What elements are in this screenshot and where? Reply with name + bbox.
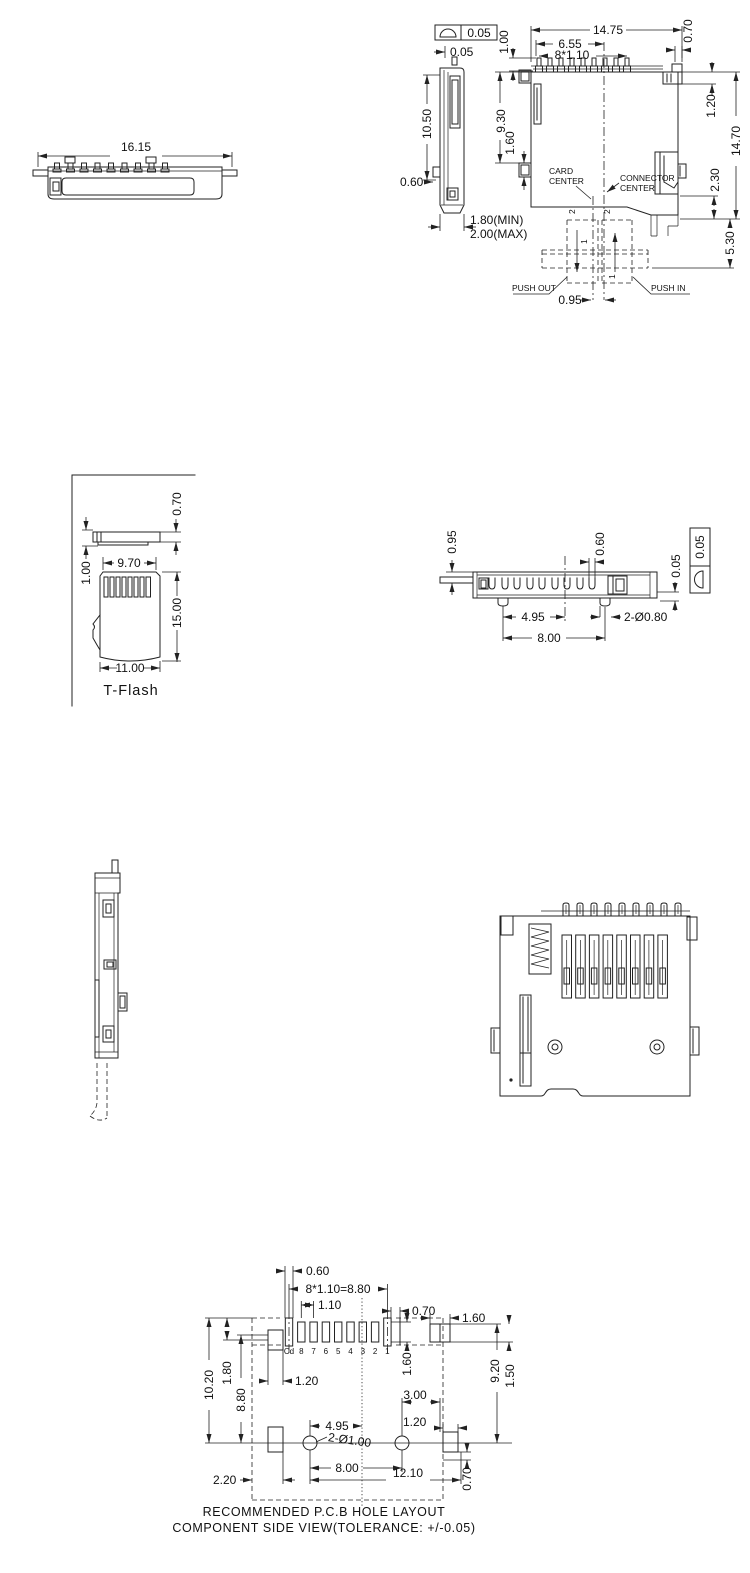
dim-pad-width: 0.60 xyxy=(306,1264,330,1278)
dim-profile-height: 10.50 xyxy=(420,109,434,139)
dim-thickness-min: 1.80(MIN) xyxy=(470,213,523,227)
dim-left-pad-width: 1.20 xyxy=(295,1374,319,1388)
pad-label-cd: Cd xyxy=(284,1347,294,1356)
dim-span: 8.80 xyxy=(234,1388,248,1412)
flatness-callout-vertical: 0.05 xyxy=(690,528,710,593)
tflash-card-view: 0.70 1.00 9.70 15.00 11.00 T-Flash xyxy=(72,475,195,706)
card-pos1-right: 1 xyxy=(607,274,617,279)
dim-right-pad2-width: 1.20 xyxy=(403,1415,427,1429)
flatness-symbol-icon xyxy=(695,571,704,588)
dim-pitch: 1.10 xyxy=(318,1298,342,1312)
technical-drawing-page: 16.15 0.05 0.05 10.50 xyxy=(0,0,750,1573)
flatness-callout: 0.05 xyxy=(435,25,497,40)
dim-bottom-margin: 0.70 xyxy=(460,1467,474,1491)
pad-label-6: 6 xyxy=(324,1347,329,1356)
pcb-pad-labels: Cd 8 7 6 5 4 3 2 1 xyxy=(284,1347,390,1356)
pad-label-1: 1 xyxy=(385,1347,390,1356)
dim-overall-depth: 14.70 xyxy=(729,126,743,156)
dim-card-thickness: 0.70 xyxy=(170,492,184,516)
card-center-label-2: CENTER xyxy=(549,176,584,186)
dim-center-offset: 0.95 xyxy=(558,293,582,307)
pad-label-2: 2 xyxy=(373,1347,378,1356)
dim-card-length: 15.00 xyxy=(170,598,184,628)
dim-peg-diameter: 2-Ø0.80 xyxy=(624,610,668,624)
dim-profile-tab: 0.60 xyxy=(400,175,424,189)
dim-pad-height: 1.60 xyxy=(400,1352,414,1376)
card-center-label-1: CARD xyxy=(549,166,573,176)
dim-overall-width: 14.75 xyxy=(593,23,623,37)
dim-thickness-max: 2.00(MAX) xyxy=(470,227,527,241)
dim-depth-to-tab: 9.30 xyxy=(494,109,508,133)
top-view: 2 2 1 1 14.75 6.55 8*1.10 1.00 9.30 1. xyxy=(494,19,743,307)
pad-label-8: 8 xyxy=(299,1347,304,1356)
card-pos1-left: 1 xyxy=(579,239,589,244)
terminal-view-pins xyxy=(563,903,681,916)
dim-right-pad-width: 1.60 xyxy=(462,1311,486,1325)
pcb-caption-line1: RECOMMENDED P.C.B HOLE LAYOUT xyxy=(203,1505,446,1519)
dim-card-width: 11.00 xyxy=(115,661,144,675)
pcb-caption-line2: COMPONENT SIDE VIEW(TOLERANCE: +/-0.05) xyxy=(172,1521,475,1535)
dim-front-overall-width: 16.15 xyxy=(121,140,151,154)
flatness-tolerance-value: 0.05 xyxy=(467,26,491,40)
terminal-face-view xyxy=(491,903,699,1096)
dim-pitch-total: 8*1.10=8.80 xyxy=(305,1282,370,1296)
dim-overall: 12.10 xyxy=(393,1466,423,1480)
pad-label-3: 3 xyxy=(361,1347,366,1356)
dim-latch-depth: 2.30 xyxy=(708,168,722,192)
pad-label-7: 7 xyxy=(311,1347,316,1356)
dim-pin-pitch: 8*1.10 xyxy=(555,48,590,62)
front-view-pins xyxy=(53,157,169,172)
dim-hole-diameter: 2-Ø1.00 xyxy=(327,1430,372,1450)
push-out-label: PUSH OUT xyxy=(512,283,556,293)
dim-lead-width: 0.60 xyxy=(593,532,607,556)
dim-card-overhang: 5.30 xyxy=(723,231,737,255)
connector-center-label-2: CENTER xyxy=(620,183,655,193)
pad-label-5: 5 xyxy=(336,1347,341,1356)
dim-standoff: 0.95 xyxy=(445,530,459,554)
dim-hole-to-pad: 3.00 xyxy=(403,1388,427,1402)
dim-right-pad-height: 1.50 xyxy=(503,1364,517,1388)
card-pos2-left: 2 xyxy=(567,209,577,214)
dim-card-top-width: 9.70 xyxy=(117,556,141,570)
dim-pin-width: 0.70 xyxy=(681,19,695,43)
dim-coplanarity: 0.05 xyxy=(669,554,683,578)
dim-pad1-offset: 0.70 xyxy=(412,1304,436,1318)
bottom-view: 0.95 0.60 0.05 0.05 4.95 8.00 2-Ø0.80 xyxy=(440,528,710,645)
tflash-contacts xyxy=(104,577,151,597)
tflash-label: T-Flash xyxy=(103,683,158,699)
dim-peg-offset: 4.95 xyxy=(521,610,545,624)
flatness-symbol-icon xyxy=(440,29,456,37)
pcb-hole-layout: Cd 8 7 6 5 4 3 2 1 0.60 8*1.10=8.80 xyxy=(172,1264,517,1535)
bottom-view-leads xyxy=(479,578,595,589)
dim-depth: 10.20 xyxy=(202,1370,216,1400)
spring-detail xyxy=(529,924,551,974)
dim-peg-pitch: 8.00 xyxy=(537,631,561,645)
dim-shell-offset: 1.20 xyxy=(704,94,718,118)
flatness-tolerance-value-vertical: 0.05 xyxy=(693,535,707,559)
dim-left-margin: 2.20 xyxy=(213,1473,237,1487)
pad-label-4: 4 xyxy=(348,1347,353,1356)
dim-hole-pitch: 8.00 xyxy=(335,1461,359,1475)
front-view: 16.15 xyxy=(33,140,237,199)
dim-tab-height: 1.60 xyxy=(503,131,517,155)
contact-slots xyxy=(562,935,667,998)
card-pos2-right: 2 xyxy=(602,209,612,214)
dim-pin-length: 1.00 xyxy=(497,30,511,54)
card-travel-dashed: 2 2 1 1 xyxy=(542,209,648,283)
drawing-canvas: 16.15 0.05 0.05 10.50 xyxy=(0,0,750,1573)
dim-contact-offset: 1.00 xyxy=(79,561,93,585)
dim-pad-row-offset: 1.80 xyxy=(220,1361,234,1385)
push-in-label: PUSH IN xyxy=(651,283,685,293)
side-view-vertical xyxy=(90,860,127,1120)
connector-center-label-1: CONNECTOR xyxy=(620,173,675,183)
dim-right-span: 9.20 xyxy=(488,1359,502,1383)
